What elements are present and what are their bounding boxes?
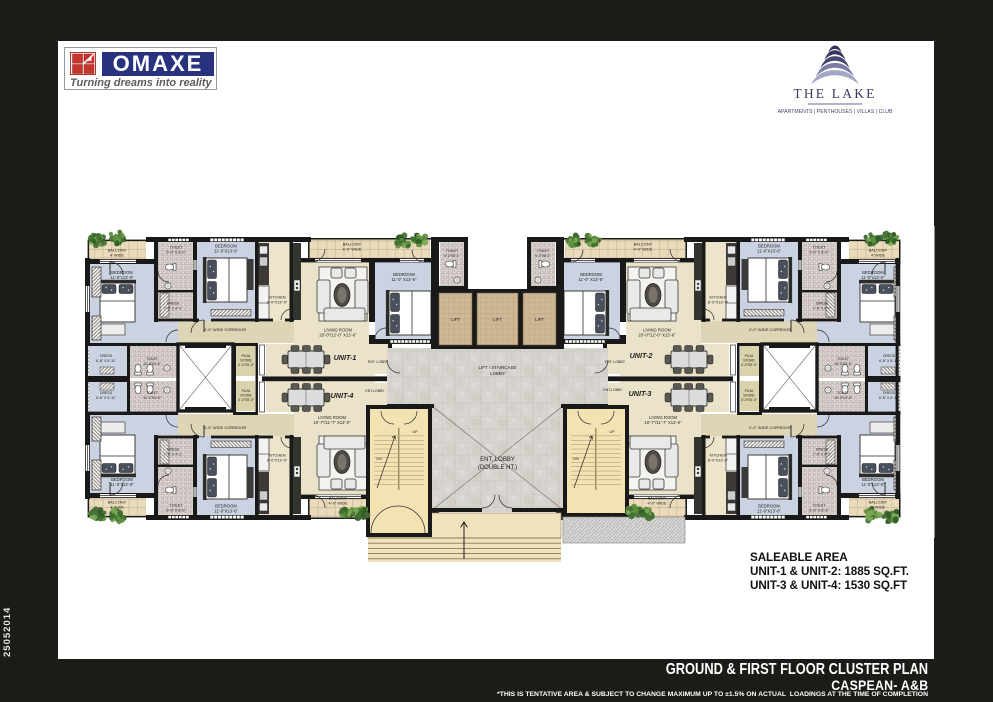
svg-text:4’-0” WIDE: 4’-0” WIDE xyxy=(633,247,652,252)
svg-text:11’-0” X13’-6”: 11’-0” X13’-6” xyxy=(578,277,604,282)
svg-text:10’-0”X4’-6”: 10’-0”X4’-6” xyxy=(834,362,852,366)
svg-text:20’-0”/12’-0” X13’-6”: 20’-0”/12’-0” X13’-6” xyxy=(638,333,676,338)
svg-text:6’-8” X 5’-11”: 6’-8” X 5’-11” xyxy=(879,396,900,400)
svg-text:7’-5” X 4’-1”: 7’-5” X 4’-1” xyxy=(813,453,832,457)
svg-text:TOILET: TOILET xyxy=(170,504,184,508)
svg-text:TOILET: TOILET xyxy=(813,504,827,508)
svg-text:ENT.LOBBY: ENT.LOBBY xyxy=(365,389,385,393)
svg-text:4' WIDE: 4' WIDE xyxy=(110,253,125,258)
svg-text:TOILET: TOILET xyxy=(813,246,827,250)
svg-text:DRESS: DRESS xyxy=(883,391,896,395)
svg-text:TOILET: TOILET xyxy=(837,357,849,361)
svg-text:4’-0”X5’-0”: 4’-0”X5’-0” xyxy=(238,363,254,367)
svg-text:PUJA: PUJA xyxy=(242,354,251,358)
svg-text:5’-0” X 8’-0”: 5’-0” X 8’-0” xyxy=(166,509,186,513)
svg-text:4' WIDE: 4' WIDE xyxy=(871,253,886,258)
svg-text:UNIT-4: UNIT-4 xyxy=(331,391,354,400)
svg-text:4’-0”X5’-0”: 4’-0”X5’-0” xyxy=(741,398,757,402)
svg-text:6’-8” X 5’-11”: 6’-8” X 5’-11” xyxy=(96,396,117,400)
svg-text:PUJA: PUJA xyxy=(242,389,251,393)
svg-text:(DOUBLE HT.): (DOUBLE HT.) xyxy=(478,465,517,471)
svg-text:4’-0”X5’-0”: 4’-0”X5’-0” xyxy=(741,363,757,367)
svg-text:7’-5” X 4’-1”: 7’-5” X 4’-1” xyxy=(164,307,183,311)
svg-text:UP: UP xyxy=(610,430,616,434)
svg-text:5’-0” X 8’-0”: 5’-0” X 8’-0” xyxy=(809,509,829,513)
svg-text:4' WIDE: 4' WIDE xyxy=(110,505,125,510)
svg-text:11’-0”X13’-6”: 11’-0”X13’-6” xyxy=(214,509,238,514)
svg-text:6’-2”X8’-1”: 6’-2”X8’-1” xyxy=(444,254,459,258)
svg-text:5’-0” X 8’-0”: 5’-0” X 8’-0” xyxy=(809,251,829,255)
svg-text:DRESS: DRESS xyxy=(816,448,829,452)
svg-text:LOBBY: LOBBY xyxy=(490,371,505,376)
svg-text:11’-0”X13’-6”: 11’-0”X13’-6” xyxy=(757,249,781,254)
svg-text:6’-8” X 5’-11”: 6’-8” X 5’-11” xyxy=(96,359,117,363)
svg-text:8’-0”X13’-0”: 8’-0”X13’-0” xyxy=(267,458,288,463)
svg-text:8’-0”X13’-0”: 8’-0”X13’-0” xyxy=(708,458,729,463)
svg-text:UNIT-3: UNIT-3 xyxy=(629,389,652,398)
svg-text:7’-5” X 4’-1”: 7’-5” X 4’-1” xyxy=(813,307,832,311)
svg-text:11’-0”x13’-0”: 11’-0”x13’-0” xyxy=(110,482,134,487)
svg-text:DN: DN xyxy=(376,457,382,461)
svg-text:4’-0” WIDE: 4’-0” WIDE xyxy=(328,501,347,506)
svg-text:4’-0” WIDE: 4’-0” WIDE xyxy=(342,247,361,252)
svg-text:6’-8” X 5’-11”: 6’-8” X 5’-11” xyxy=(879,359,900,363)
svg-text:11’-0” X13’-6”: 11’-0” X13’-6” xyxy=(391,277,417,282)
svg-text:4’-0” WIDE CORRIDOR: 4’-0” WIDE CORRIDOR xyxy=(204,327,247,332)
svg-text:8’-0”X13’-0”: 8’-0”X13’-0” xyxy=(708,300,729,305)
svg-text:ENT. LOBBY: ENT. LOBBY xyxy=(480,457,515,463)
svg-text:DRESS: DRESS xyxy=(816,302,829,306)
svg-text:DRESS: DRESS xyxy=(167,302,180,306)
svg-text:11’-0”X13’-6”: 11’-0”X13’-6” xyxy=(757,509,781,514)
svg-text:STORE: STORE xyxy=(743,359,755,363)
svg-text:11’-0”x13’-0”: 11’-0”x13’-0” xyxy=(110,275,134,280)
svg-text:DRESS: DRESS xyxy=(883,354,896,358)
svg-text:TOILET: TOILET xyxy=(170,246,184,250)
svg-text:LIFT: LIFT xyxy=(535,317,544,322)
svg-text:TOILET: TOILET xyxy=(146,391,158,395)
svg-text:10’-0”X4’-6”: 10’-0”X4’-6” xyxy=(143,396,161,400)
svg-text:4’-0” WIDE CORRIDOR: 4’-0” WIDE CORRIDOR xyxy=(749,327,792,332)
svg-text:STORE: STORE xyxy=(240,359,252,363)
svg-text:TOILET: TOILET xyxy=(446,249,459,253)
svg-text:UNIT-1: UNIT-1 xyxy=(334,353,357,362)
svg-text:DRESS: DRESS xyxy=(100,354,113,358)
svg-text:LIFT: LIFT xyxy=(451,317,460,322)
svg-text:10’-7”/11’-7” X12’-0”: 10’-7”/11’-7” X12’-0” xyxy=(645,420,683,425)
svg-text:LIFT: LIFT xyxy=(493,317,502,322)
svg-text:10’-0”X4’-6”: 10’-0”X4’-6” xyxy=(834,396,852,400)
svg-text:ENT.LOBBY: ENT.LOBBY xyxy=(603,388,623,392)
svg-text:TOILET: TOILET xyxy=(837,391,849,395)
svg-text:11’-0”X13’-6”: 11’-0”X13’-6” xyxy=(214,249,238,254)
svg-text:7’-5” X 4’-1”: 7’-5” X 4’-1” xyxy=(164,453,183,457)
svg-text:10’-0”X4’-6”: 10’-0”X4’-6” xyxy=(143,362,161,366)
svg-text:4’-0”X5’-0”: 4’-0”X5’-0” xyxy=(238,398,254,402)
svg-text:DRESS: DRESS xyxy=(100,391,113,395)
svg-text:PUJA: PUJA xyxy=(745,389,754,393)
svg-text:11’-0”x13’-0”: 11’-0”x13’-0” xyxy=(861,482,885,487)
svg-text:6’-2”X8’-1”: 6’-2”X8’-1” xyxy=(535,254,550,258)
svg-text:TOILET: TOILET xyxy=(537,249,550,253)
svg-text:20’-0”/12’-0” X13’-6”: 20’-0”/12’-0” X13’-6” xyxy=(319,333,357,338)
svg-text:STORE: STORE xyxy=(240,394,252,398)
svg-text:4’-0” WIDE: 4’-0” WIDE xyxy=(647,501,666,506)
svg-text:4’-0” WIDE CORRIDOR: 4’-0” WIDE CORRIDOR xyxy=(204,425,247,430)
svg-text:ENT. LOBBY: ENT. LOBBY xyxy=(605,360,626,364)
svg-text:PUJA: PUJA xyxy=(745,354,754,358)
svg-text:UP: UP xyxy=(413,430,419,434)
svg-text:8’-0”X13’-0”: 8’-0”X13’-0” xyxy=(267,300,288,305)
svg-text:DRESS: DRESS xyxy=(167,448,180,452)
svg-text:LIFT / STAIRCASE: LIFT / STAIRCASE xyxy=(478,365,516,370)
svg-text:4' WIDE: 4' WIDE xyxy=(871,505,886,510)
svg-text:ENT. LOBBY: ENT. LOBBY xyxy=(368,360,389,364)
svg-text:UNIT-2: UNIT-2 xyxy=(630,351,653,360)
svg-text:TOILET: TOILET xyxy=(146,357,158,361)
svg-text:4’-0” WIDE CORRIDOR: 4’-0” WIDE CORRIDOR xyxy=(749,425,792,430)
svg-text:5’-0” X 8’-0”: 5’-0” X 8’-0” xyxy=(166,251,186,255)
svg-text:DN: DN xyxy=(573,457,579,461)
svg-text:10’-7”/11’-7” X12’-0”: 10’-7”/11’-7” X12’-0” xyxy=(314,420,352,425)
svg-text:STORE: STORE xyxy=(743,394,755,398)
svg-text:11’-0”x13’-0”: 11’-0”x13’-0” xyxy=(861,275,885,280)
